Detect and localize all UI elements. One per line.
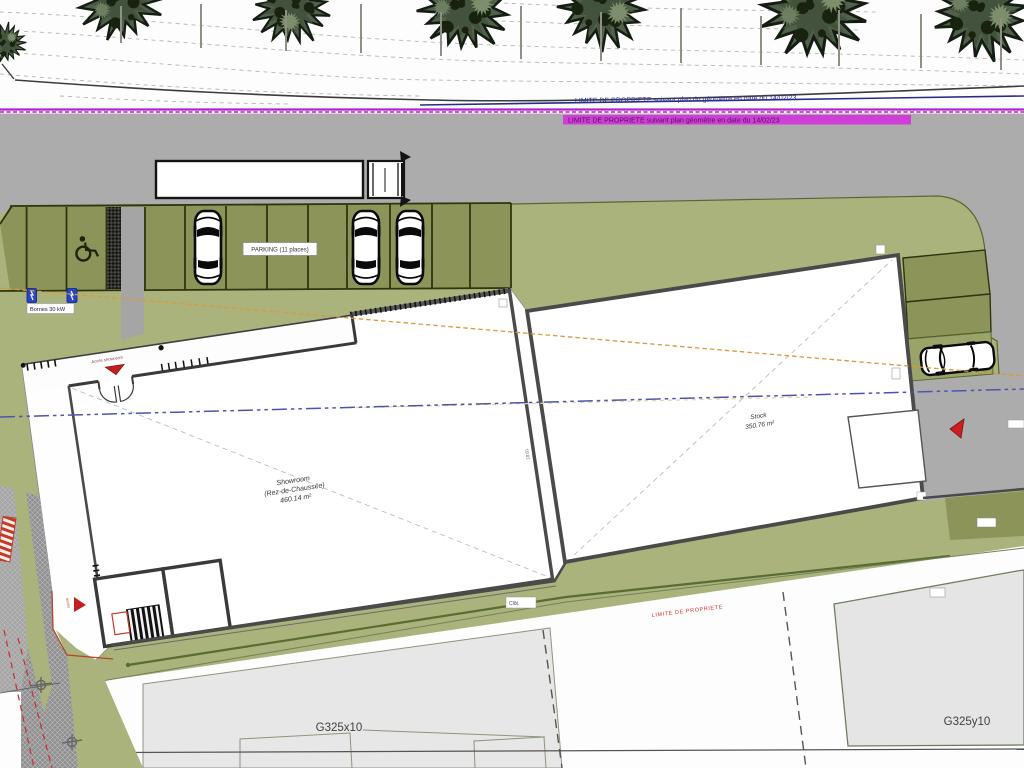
svg-text:Bornes 30 kW: Bornes 30 kW	[30, 307, 66, 313]
svg-text:LIMITE DE PROPRIETE suivant pl: LIMITE DE PROPRIETE suivant plan géomètr…	[568, 118, 780, 125]
svg-text:G325x10: G325x10	[316, 722, 363, 734]
svg-text:G325y10: G325y10	[944, 716, 991, 728]
svg-text:PARKING (11 places): PARKING (11 places)	[251, 248, 308, 254]
svg-text:Clôt.: Clôt.	[509, 601, 519, 607]
